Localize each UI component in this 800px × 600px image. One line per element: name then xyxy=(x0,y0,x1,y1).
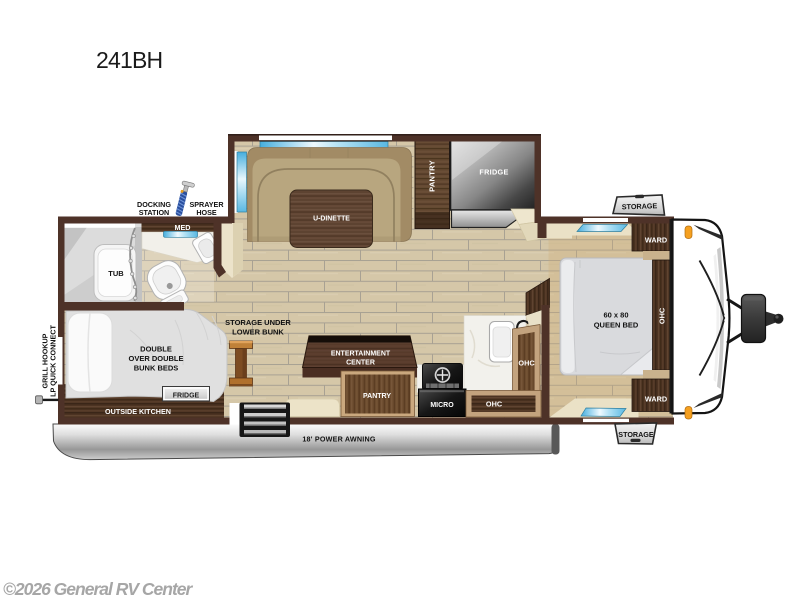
svg-text:OHC: OHC xyxy=(658,307,667,324)
svg-text:STORAGE UNDER: STORAGE UNDER xyxy=(225,318,291,327)
svg-text:18' POWER AWNING: 18' POWER AWNING xyxy=(302,435,376,444)
svg-text:LP QUICK CONNECT: LP QUICK CONNECT xyxy=(49,325,58,397)
svg-text:MICRO: MICRO xyxy=(430,402,454,409)
svg-text:ENTERTAINMENT: ENTERTAINMENT xyxy=(331,351,391,358)
svg-text:CENTER: CENTER xyxy=(346,360,375,367)
svg-text:LOWER BUNK: LOWER BUNK xyxy=(232,328,284,337)
svg-text:OHC: OHC xyxy=(486,400,503,409)
svg-text:FRIDGE: FRIDGE xyxy=(173,393,200,400)
svg-text:OVER DOUBLE: OVER DOUBLE xyxy=(128,354,183,363)
svg-text:TUB: TUB xyxy=(108,269,124,278)
svg-text:OHC: OHC xyxy=(518,359,535,368)
svg-text:PANTRY: PANTRY xyxy=(428,160,437,192)
svg-text:MED: MED xyxy=(175,223,191,232)
svg-text:STATION: STATION xyxy=(139,208,169,217)
svg-text:HOSE: HOSE xyxy=(196,208,217,217)
svg-text:QUEEN BED: QUEEN BED xyxy=(594,321,639,330)
svg-text:©2026 General RV Center: ©2026 General RV Center xyxy=(3,579,194,599)
svg-text:U-DINETTE: U-DINETTE xyxy=(313,216,350,223)
svg-text:STORAGE: STORAGE xyxy=(622,201,658,211)
svg-text:PANTRY: PANTRY xyxy=(363,393,391,400)
svg-text:241BH: 241BH xyxy=(96,47,162,73)
svg-text:DOUBLE: DOUBLE xyxy=(140,345,172,354)
svg-text:WARD: WARD xyxy=(645,395,667,404)
svg-text:OUTSIDE KITCHEN: OUTSIDE KITCHEN xyxy=(105,407,171,416)
svg-text:60 x 80: 60 x 80 xyxy=(603,311,628,320)
svg-text:FRIDGE: FRIDGE xyxy=(479,168,508,177)
svg-text:STORAGE: STORAGE xyxy=(618,430,654,439)
svg-text:WARD: WARD xyxy=(645,236,667,245)
svg-text:BUNK BEDS: BUNK BEDS xyxy=(134,364,179,373)
